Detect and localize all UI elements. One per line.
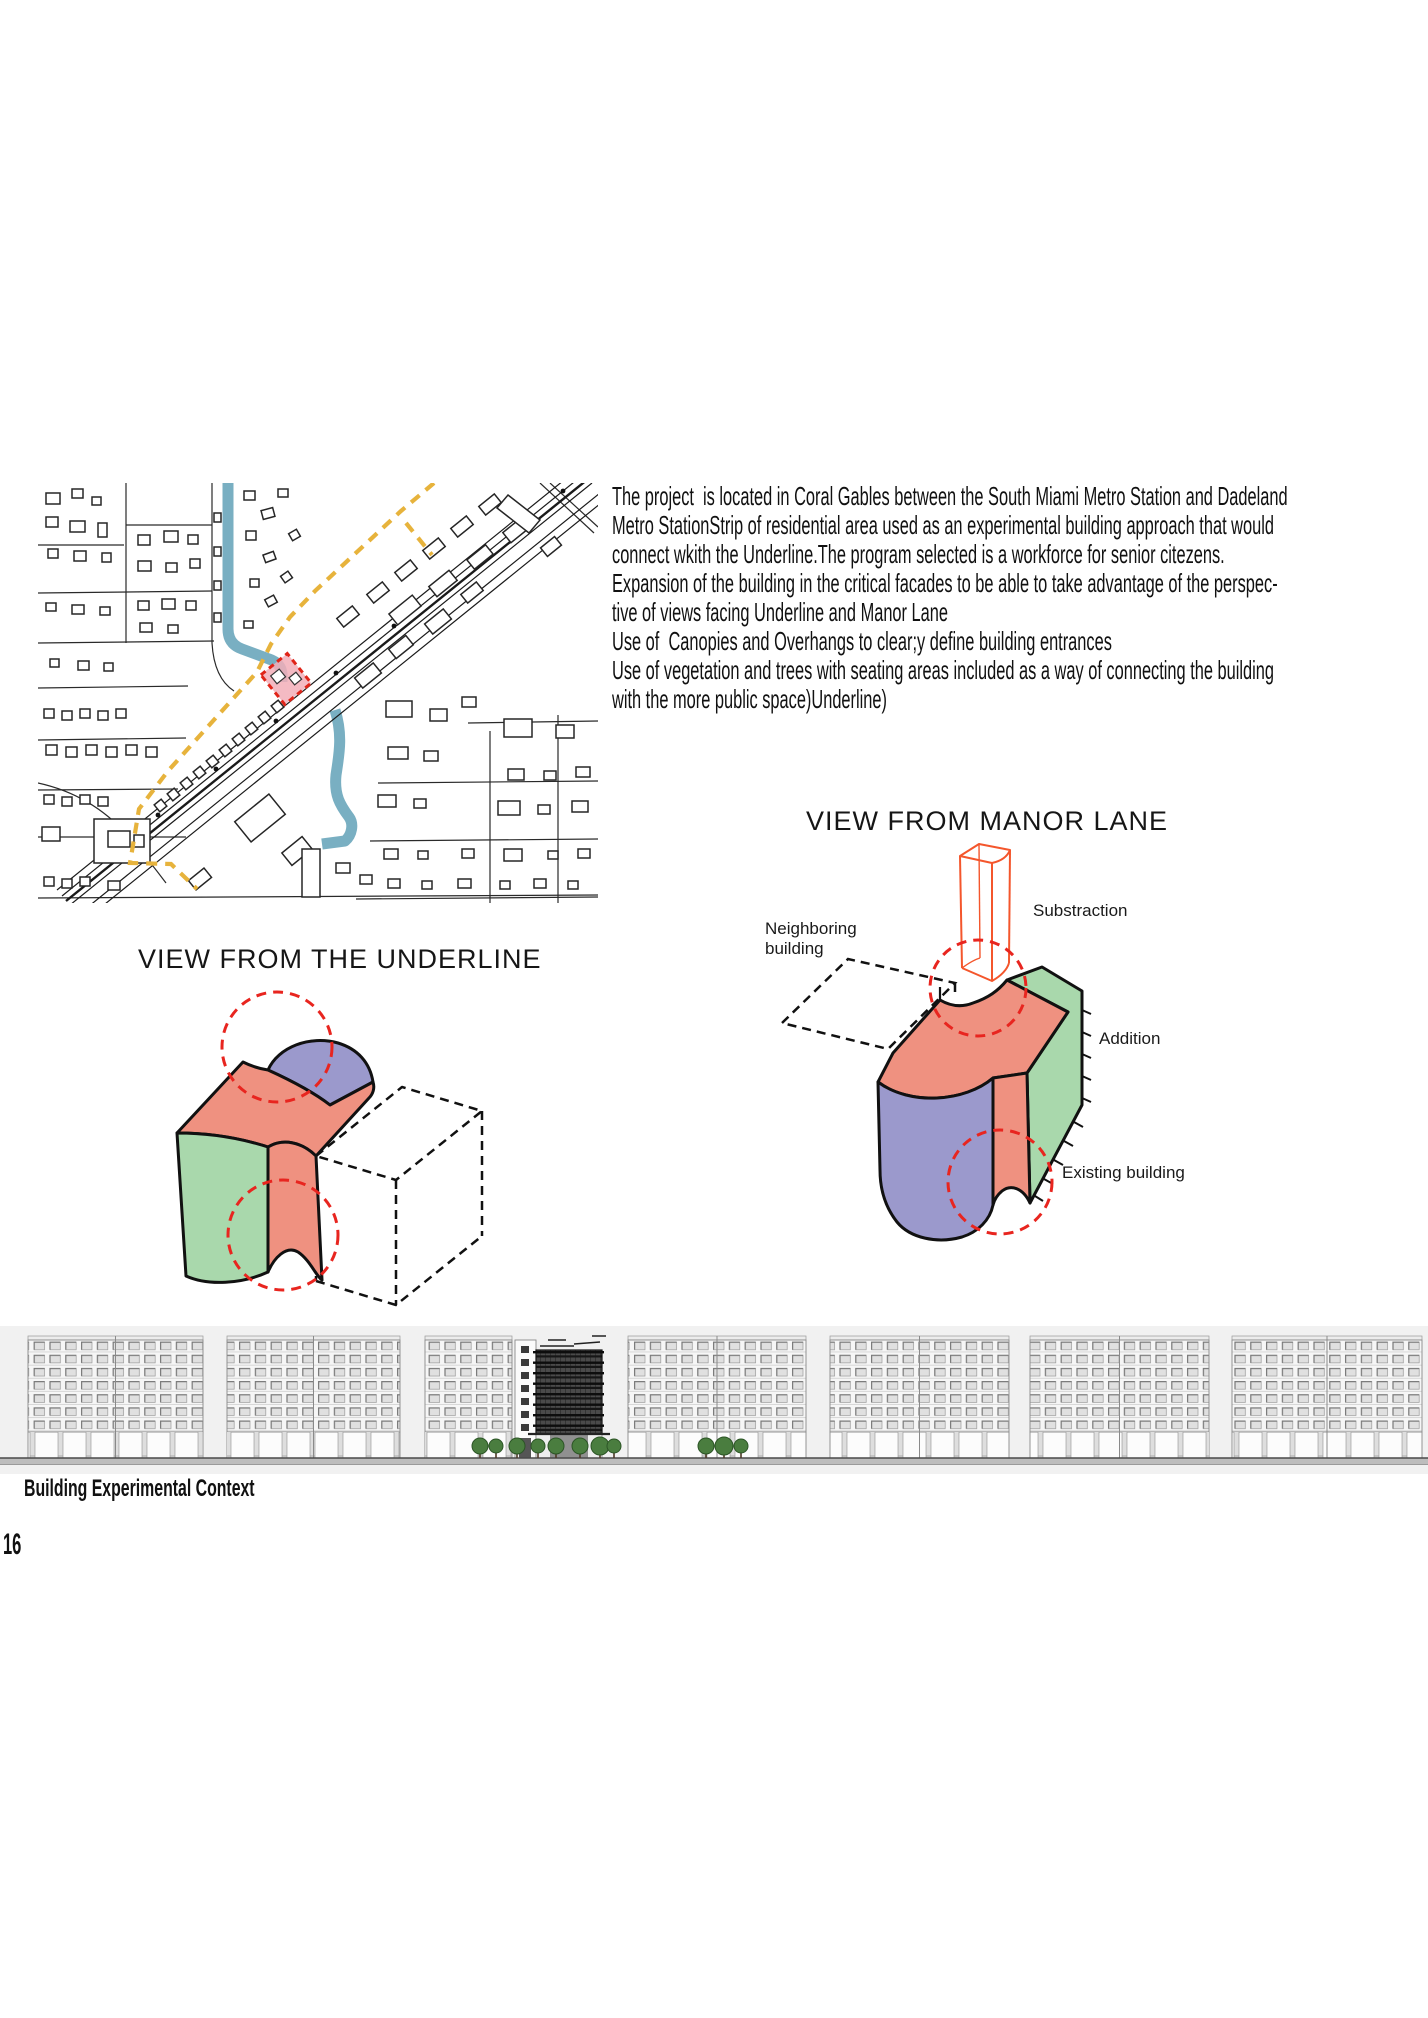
ground-line [0, 1458, 1428, 1465]
description-line: tive of views facing Underline and Manor… [612, 598, 1359, 627]
description-line: Metro StationStrip of residential area u… [612, 511, 1359, 540]
label-addition: Addition [1099, 1029, 1160, 1049]
map-buildings [42, 489, 590, 897]
label-line: Neighboring [765, 919, 857, 939]
description-line: Use of Canopies and Overhangs to clear;y… [612, 627, 1359, 656]
underline-axon-diagram [120, 985, 540, 1350]
description-line: Use of vegetation and trees with seating… [612, 656, 1359, 685]
front-salmon-face [993, 1073, 1030, 1205]
label-line: building [765, 939, 857, 959]
label-substraction: Substraction [1033, 901, 1128, 921]
existing-purple-face [878, 1078, 993, 1240]
substraction-volume [960, 844, 1010, 981]
underline-view-title: VIEW FROM THE UNDERLINE [138, 944, 532, 975]
green-face [177, 1133, 268, 1282]
description-line: with the more public space)Underline) [612, 685, 1359, 714]
elevation-caption: Building Experimental Context [24, 1475, 255, 1503]
manor-building-volume [878, 967, 1082, 1240]
description-line: The project is located in Coral Gables b… [612, 482, 1359, 511]
manor-view-title: VIEW FROM MANOR LANE [806, 806, 1158, 837]
site-map [38, 483, 598, 903]
manor-axon-diagram [730, 840, 1250, 1272]
underline-building-volume [177, 1041, 374, 1283]
description-line: connect wkith the Underline.The program … [612, 540, 1359, 569]
label-existing-building: Existing building [1062, 1163, 1185, 1183]
page-number: 16 [3, 1528, 21, 1562]
front-salmon-face [268, 1142, 322, 1280]
project-description: The project is located in Coral Gables b… [612, 482, 1359, 714]
label-neighboring-building: Neighboring building [765, 919, 857, 959]
street-elevation [0, 1326, 1428, 1482]
map-corridor-dots [156, 489, 566, 818]
description-line: Expansion of the building in the critica… [612, 569, 1359, 598]
